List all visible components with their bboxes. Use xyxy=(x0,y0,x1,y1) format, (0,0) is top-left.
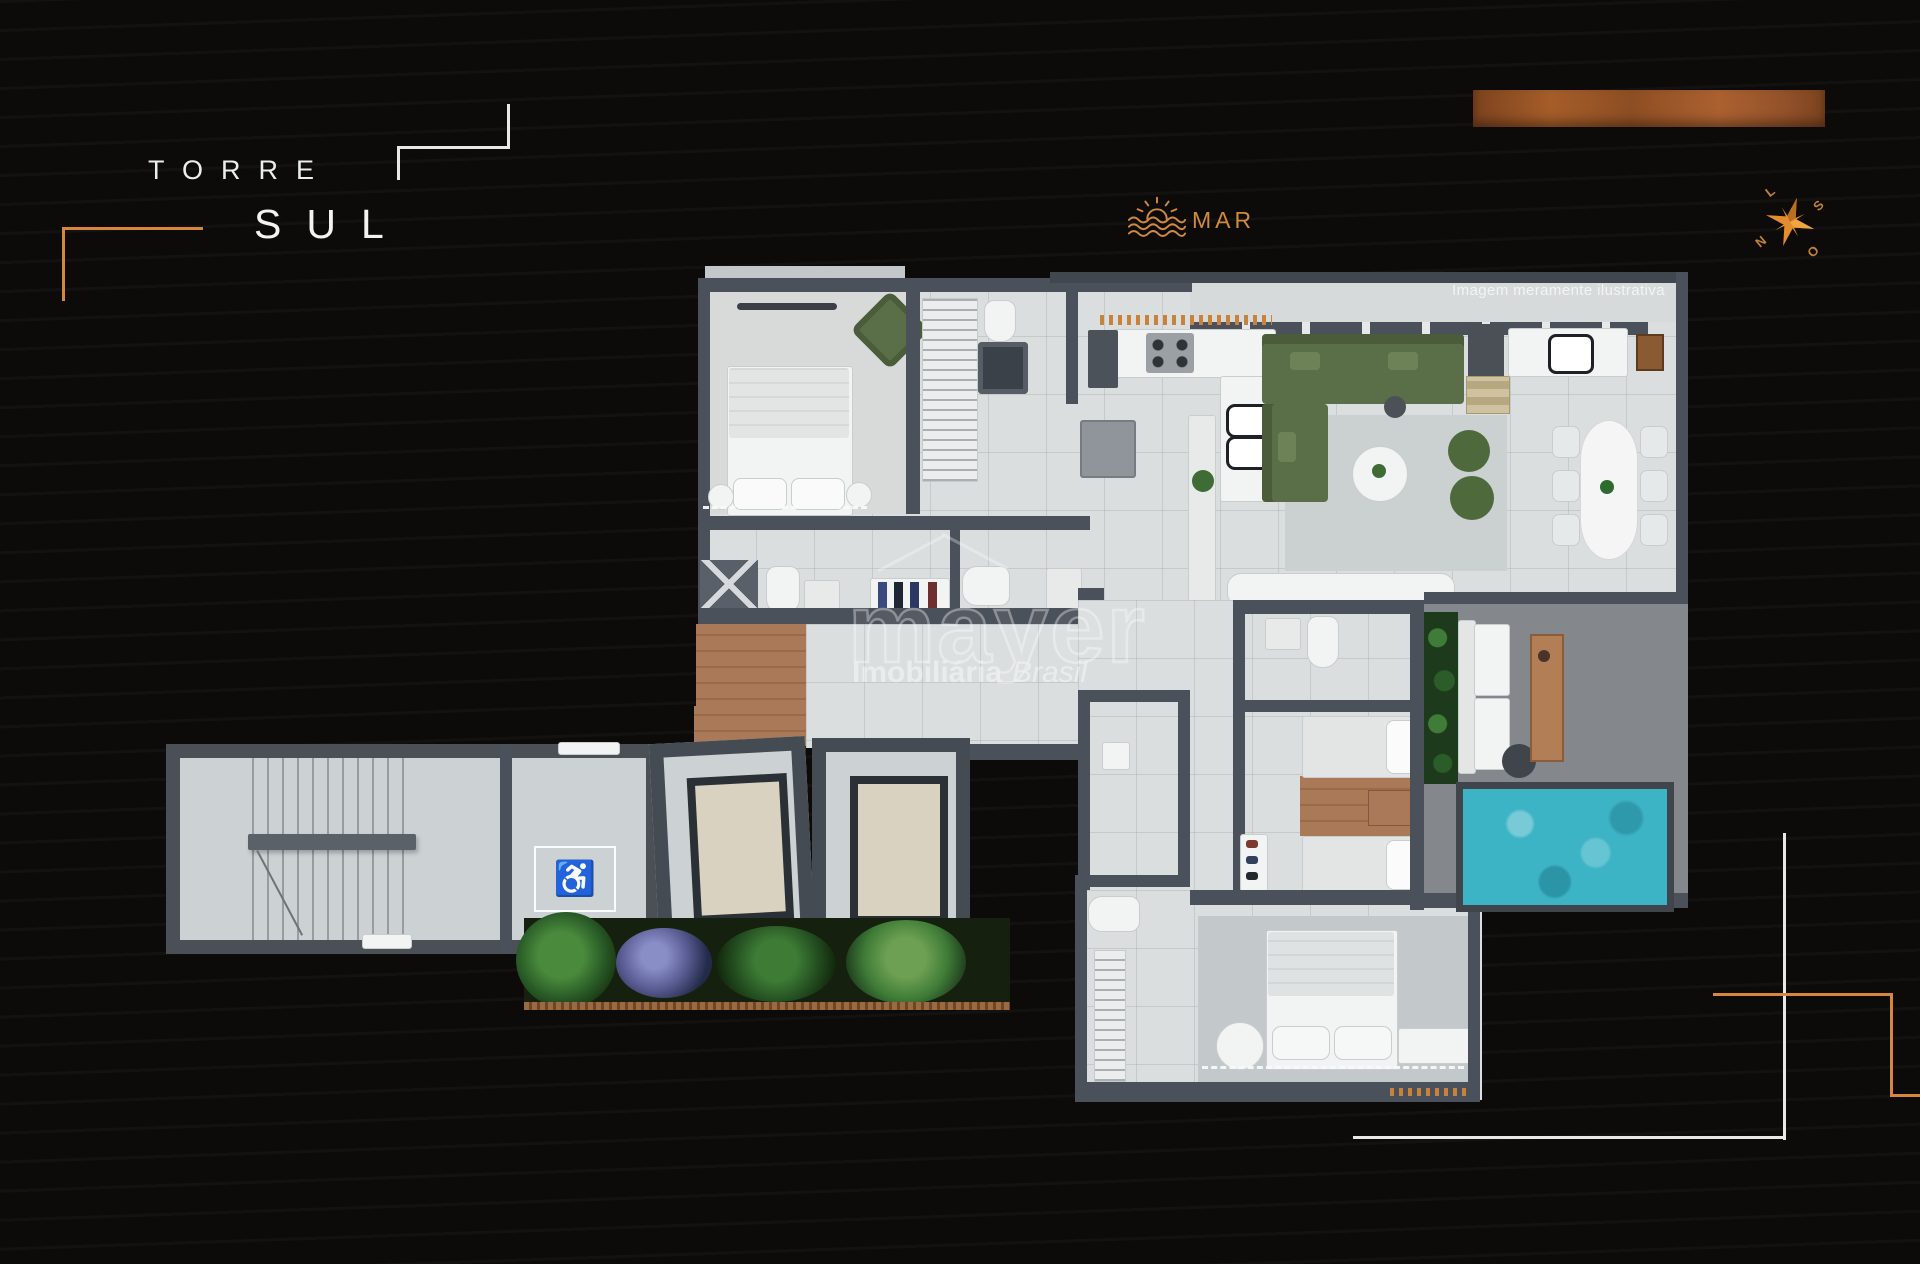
floorplan-poster: TORRE SUL MAR L S N O xyxy=(0,0,1920,1264)
compass-west-label: O xyxy=(1804,243,1822,260)
bench-dresser xyxy=(1398,1028,1474,1064)
pouf-dark xyxy=(1384,396,1406,418)
wardrobe-rack xyxy=(922,298,978,482)
wall xyxy=(1468,900,1480,1102)
orange-bracket-horizontal xyxy=(62,227,203,230)
window-slats xyxy=(1390,1088,1466,1096)
console-half-wall xyxy=(1188,415,1216,607)
wall xyxy=(1233,700,1424,712)
walkin-closet-rack xyxy=(1094,950,1126,1082)
armchair-round xyxy=(1216,1022,1264,1070)
hanging-clothes xyxy=(910,582,919,610)
elevator-shaft xyxy=(649,736,815,946)
sofa-pillow xyxy=(1278,432,1296,462)
tower-title-line2: SUL xyxy=(254,201,409,248)
bed-blanket xyxy=(729,368,849,438)
nightstand-round xyxy=(846,482,872,508)
bed-blanket xyxy=(1268,932,1394,996)
white-bracket-vertical-bottom xyxy=(397,146,400,180)
laundry-sink xyxy=(1102,742,1130,770)
white-bracket-horizontal xyxy=(397,146,510,149)
shoes xyxy=(1246,840,1258,848)
washing-machine xyxy=(978,342,1028,394)
nightstand-wood xyxy=(1368,790,1412,826)
hanging-clothes xyxy=(928,582,937,610)
pouf-green xyxy=(1450,476,1494,520)
curtain xyxy=(1202,1066,1464,1069)
decor-line-horizontal xyxy=(1353,1136,1786,1139)
wall xyxy=(966,744,1090,760)
pouf-green xyxy=(1448,430,1490,472)
checker-side-table xyxy=(1466,376,1510,414)
white-bracket-vertical-top xyxy=(507,104,510,149)
sofa-pillow xyxy=(1290,352,1320,370)
kitchen-counter xyxy=(1112,329,1276,378)
wall xyxy=(1078,875,1190,887)
bar-sink xyxy=(1548,334,1594,374)
bed-pillow xyxy=(1334,1026,1392,1060)
console-plant xyxy=(1192,470,1214,492)
wall xyxy=(500,744,512,954)
bush xyxy=(716,926,836,1002)
wheelchair-icon: ♿ xyxy=(554,862,596,896)
sink-vanity xyxy=(1265,618,1301,650)
compass-rose: L S N O xyxy=(1738,172,1842,276)
shoes xyxy=(1246,872,1258,880)
elevator-cabin xyxy=(687,773,795,924)
toilet xyxy=(1088,896,1140,932)
wall xyxy=(1233,600,1424,614)
tower-title-line1: TORRE xyxy=(148,155,332,186)
sofa-pillow xyxy=(1388,352,1418,370)
flower-bush-purple xyxy=(616,928,712,998)
tv-console xyxy=(1468,324,1504,376)
wall xyxy=(1078,690,1090,890)
cooktop xyxy=(1146,333,1194,373)
wall xyxy=(1424,592,1688,604)
hall-floor xyxy=(806,624,1090,748)
decor-line-vertical xyxy=(1783,833,1786,1140)
dining-chair xyxy=(1552,470,1580,502)
balcony-edge xyxy=(705,266,905,278)
planter-trim xyxy=(524,1002,1010,1010)
fridge xyxy=(1080,420,1136,478)
orange-step-line-horizontal xyxy=(1713,993,1893,996)
ceiling-fan xyxy=(737,303,837,310)
outdoor-sofa-cushion xyxy=(1474,624,1510,696)
toilet xyxy=(1307,616,1339,668)
door-threshold xyxy=(558,742,620,755)
wall xyxy=(1066,292,1078,404)
elevator-shaft xyxy=(812,738,970,946)
toilet xyxy=(984,300,1016,342)
cutting-board xyxy=(1636,334,1664,371)
curtain xyxy=(703,506,867,509)
sink-vanity xyxy=(1046,568,1082,610)
pool xyxy=(1456,782,1674,912)
wall xyxy=(906,292,920,514)
bed-pillow xyxy=(1272,1026,1330,1060)
hanging-clothes xyxy=(894,582,903,610)
table-plant xyxy=(1600,480,1614,494)
elevator-cabin xyxy=(850,776,948,924)
sea-waves-sun-icon xyxy=(1126,194,1188,242)
door-threshold xyxy=(362,934,412,949)
dining-chair xyxy=(1552,426,1580,458)
hedge-planter xyxy=(1424,612,1458,784)
shower-tray xyxy=(700,560,758,608)
wall xyxy=(698,608,1090,624)
wall xyxy=(1075,875,1087,1102)
orange-step-line-vertical xyxy=(1890,993,1893,1097)
hanging-clothes xyxy=(878,582,887,610)
wall xyxy=(1190,890,1424,905)
pergola-slats xyxy=(1100,315,1272,325)
tall-cabinet xyxy=(1088,330,1118,388)
wall xyxy=(1410,600,1424,910)
wall xyxy=(1178,690,1190,880)
wall xyxy=(1078,690,1188,702)
bush xyxy=(516,912,616,1008)
sea-label: MAR xyxy=(1192,207,1255,234)
toilet xyxy=(766,566,800,614)
shoes xyxy=(1246,856,1258,864)
stair-landing xyxy=(248,834,416,850)
bush-light xyxy=(846,920,966,1004)
dining-chair xyxy=(1640,426,1668,458)
wood-texture-bar xyxy=(1473,90,1825,127)
table-decor xyxy=(1538,650,1550,662)
dining-chair xyxy=(1552,514,1580,546)
orange-bracket-vertical xyxy=(62,227,65,301)
accessibility-marking: ♿ xyxy=(534,846,616,912)
disclaimer-text: Imagem meramente ilustrativa xyxy=(1452,282,1665,299)
wall xyxy=(950,516,960,608)
orange-step-line-end xyxy=(1890,1094,1920,1097)
dining-chair xyxy=(1640,470,1668,502)
table-plant xyxy=(1372,464,1386,478)
wall xyxy=(698,516,1090,530)
dining-chair xyxy=(1640,514,1668,546)
toilet xyxy=(962,566,1010,606)
